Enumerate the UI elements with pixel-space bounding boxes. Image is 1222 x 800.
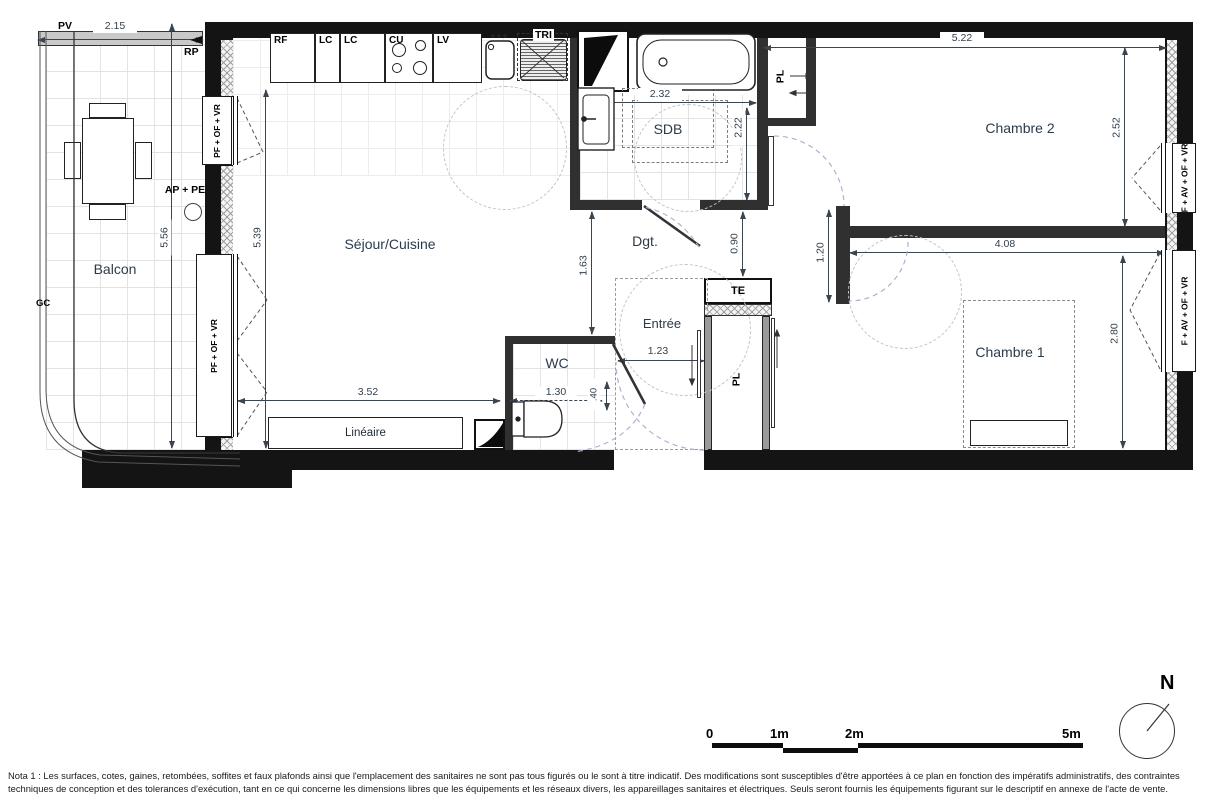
dim-sdb-width: 2.32	[638, 88, 682, 101]
scale-bar-segment	[858, 743, 1083, 748]
window-glazing	[1161, 250, 1166, 372]
scale-tick-1m: 1m	[770, 726, 789, 741]
balcony-chair	[89, 204, 126, 220]
gc-label: GC	[36, 298, 50, 309]
dim-balcon-width: 2.15	[93, 20, 137, 33]
wall-pl2-bottom	[757, 118, 816, 126]
dim-dgt-height: 1.63	[578, 248, 591, 284]
scale-bar-segment	[712, 743, 783, 748]
window-label-chambre2: F + AV + OF + VR	[1172, 143, 1196, 213]
dim-line	[828, 210, 829, 302]
kitchen-unit-cabinet-2: LC	[340, 33, 385, 83]
dim-line	[850, 252, 1164, 253]
dim-line	[38, 39, 203, 40]
dim-line	[578, 102, 756, 103]
dim-line	[742, 212, 743, 276]
entree-zone	[615, 278, 708, 450]
window-glazing	[233, 254, 238, 437]
ap-pe-label: AP + PE	[150, 184, 220, 196]
kitchen-unit-label: RF	[274, 35, 287, 46]
scale-tick-0: 0	[706, 726, 713, 741]
window-glazing	[233, 96, 238, 165]
scale-bar-segment	[783, 748, 858, 753]
pl-entree-door-leaf	[771, 318, 775, 428]
wall-hatch	[221, 166, 233, 254]
rp-label: RP	[184, 46, 199, 58]
nota-text: Nota 1 : Les surfaces, cotes, gaines, re…	[8, 769, 1216, 795]
wall-hatch	[1167, 213, 1177, 250]
window-label-left-bottom: PF + OF + VR	[196, 254, 232, 437]
kitchen-unit-label: LV	[437, 35, 449, 46]
dim-line	[1122, 256, 1123, 448]
kitchen-unit-label: LC	[319, 35, 332, 46]
window-label-chambre1: F + AV + OF + VR	[1172, 250, 1196, 372]
room-label-chambre1: Chambre 1	[950, 344, 1070, 360]
room-label-balcon: Balcon	[75, 261, 155, 277]
room-label-sejour: Séjour/Cuisine	[320, 236, 460, 252]
dim-chambre1-width: 4.08	[983, 238, 1027, 251]
kitchen-unit-cooktop: CU	[385, 33, 433, 83]
pv-label: PV	[58, 20, 72, 32]
wall-hatch	[1167, 372, 1177, 450]
wall-hatch	[1167, 40, 1177, 143]
lineaire-label: Linéaire	[345, 427, 386, 439]
balcony-floor-tiles	[46, 38, 205, 450]
kitchen-unit-dishwasher: LV	[433, 33, 482, 83]
dim-wall-length: 1.20	[815, 235, 828, 271]
dim-line	[238, 400, 500, 401]
duct-box-sdb	[577, 30, 629, 92]
window-label-left-top: PF + OF + VR	[202, 96, 232, 165]
wall-bottom-step	[82, 450, 292, 488]
dim-chambre2-width: 5.22	[940, 32, 984, 45]
north-label: N	[1160, 672, 1174, 695]
pl-entree-door-leaf	[697, 330, 701, 398]
tri-label: TRI	[533, 29, 554, 41]
dim-wc-offset: .40	[588, 379, 601, 411]
chambre2-door-leaf	[768, 136, 774, 206]
room-label-entree: Entrée	[622, 316, 702, 331]
pl-chambre2-label: PL	[775, 64, 788, 90]
dim-line	[1124, 48, 1125, 226]
balcony-post	[184, 203, 202, 221]
window-label-text: PF + OF + VR	[212, 104, 222, 158]
dim-sdb-height: 2.22	[733, 110, 746, 146]
window-glazing	[1161, 143, 1166, 213]
lineaire-cabinet: Linéaire	[268, 417, 463, 449]
room-label-sdb: SDB	[638, 121, 698, 137]
wall-hatch	[221, 40, 233, 96]
wall-hatch	[221, 438, 233, 450]
pl-entree-label: PL	[731, 367, 744, 393]
wall-wc-top	[505, 336, 615, 344]
turning-circle	[443, 86, 567, 210]
window-label-text: F + AV + OF + VR	[1179, 277, 1189, 346]
scale-tick-5m: 5m	[1062, 726, 1081, 741]
dim-line	[591, 212, 592, 334]
wall-pl2-right	[806, 38, 816, 126]
balcony-chair	[135, 142, 152, 179]
kitchen-unit-fridge: RF	[270, 33, 315, 83]
dim-chambre1-height: 2.80	[1109, 316, 1122, 352]
floor-plan: PF + OF + VR PF + OF + VR F + AV + OF + …	[0, 0, 1222, 800]
scale-tick-2m: 2m	[845, 726, 864, 741]
kitchen-tri-bin	[520, 39, 567, 81]
dim-line	[618, 360, 704, 361]
wall-wc-left	[505, 336, 513, 450]
window-label-text: PF + OF + VR	[209, 319, 219, 373]
wall-sdb-bottom-left	[570, 200, 642, 210]
dim-wc-width: 1.30	[535, 386, 577, 399]
cooktop-burner	[415, 40, 426, 51]
room-label-chambre2: Chambre 2	[960, 120, 1080, 136]
room-label-dgt: Dgt.	[615, 233, 675, 249]
dim-hall-height: 0.90	[729, 226, 742, 262]
dim-sejour-height: 5.39	[252, 220, 265, 256]
wall-bottom-right	[704, 450, 1193, 470]
north-compass	[1119, 703, 1175, 759]
dim-line	[746, 108, 747, 200]
dim-line	[265, 90, 266, 448]
cooktop-burner	[392, 43, 406, 57]
cooktop-burner	[392, 63, 402, 73]
balcony-table	[82, 118, 134, 204]
balcony-chair	[89, 103, 126, 118]
chambre2-door-arc	[774, 136, 844, 206]
dim-lineaire-width: 3.52	[346, 386, 390, 399]
dim-chambre2-height: 2.52	[1111, 110, 1124, 146]
te-label: TE	[731, 285, 745, 297]
bathtub	[637, 34, 755, 90]
pl-entree-right-wall	[762, 316, 770, 450]
dim-balcon-height: 5.56	[159, 220, 172, 256]
cooktop-burner	[413, 61, 427, 75]
balcony-chair	[64, 142, 81, 179]
dim-line	[606, 382, 607, 410]
dim-entree-width: 1.23	[638, 345, 678, 358]
window-label-text: F + AV + OF + VR	[1179, 144, 1189, 213]
kitchen-unit-cabinet-1: LC	[315, 33, 340, 83]
room-label-wc: WC	[532, 355, 582, 371]
bed-footer	[970, 420, 1068, 446]
duct-box-wc	[474, 419, 505, 450]
dim-line	[764, 47, 1166, 48]
kitchen-unit-label: LC	[344, 35, 357, 46]
